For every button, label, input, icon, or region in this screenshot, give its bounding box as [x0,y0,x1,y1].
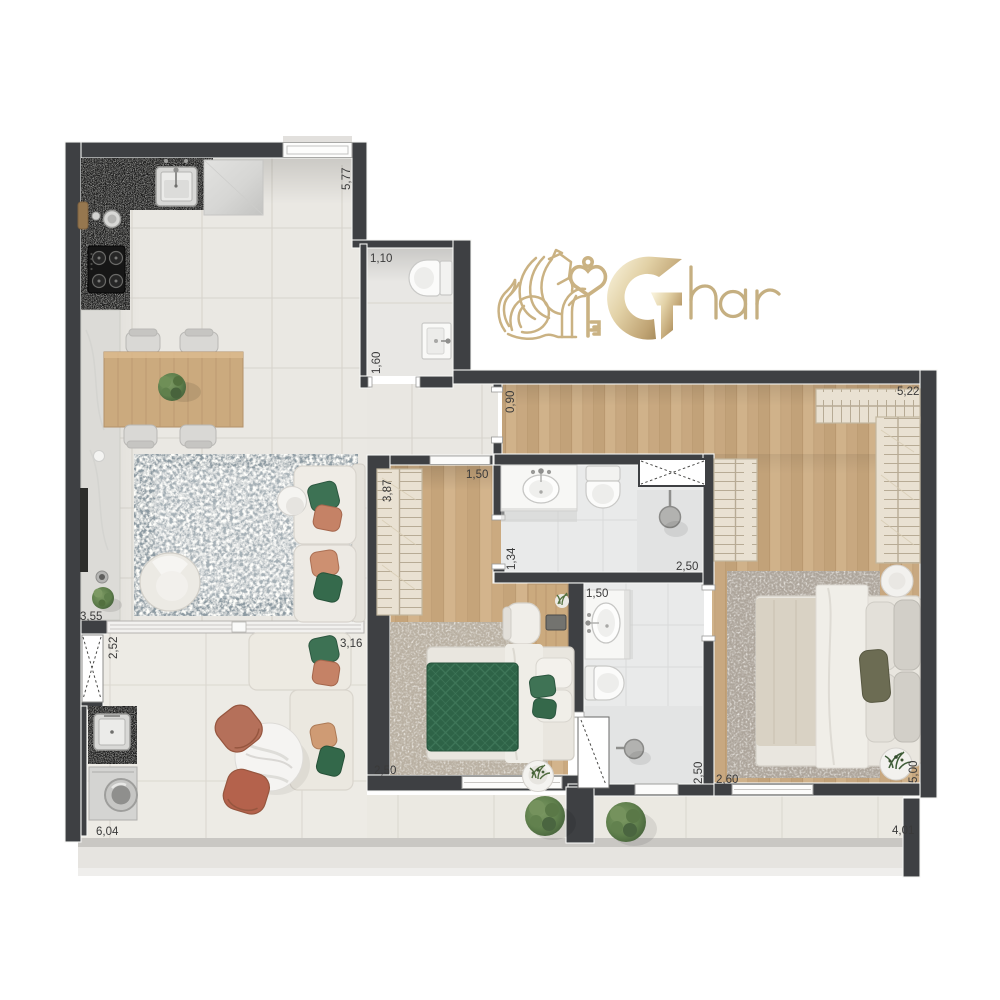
svg-text:3,55: 3,55 [80,611,102,623]
svg-text:3,16: 3,16 [340,638,362,650]
svg-text:1,60: 1,60 [371,352,383,374]
svg-text:0,90: 0,90 [505,391,517,413]
svg-text:4,01: 4,01 [892,825,914,837]
svg-text:3,87: 3,87 [382,480,394,502]
svg-text:2,50: 2,50 [676,561,698,573]
svg-text:1,50: 1,50 [466,469,488,481]
svg-text:5,00: 5,00 [908,761,920,783]
svg-text:2,52: 2,52 [108,637,120,659]
svg-text:1,10: 1,10 [370,253,392,265]
svg-text:1,34: 1,34 [506,547,518,570]
svg-text:5,77: 5,77 [341,168,353,190]
svg-text:6,04: 6,04 [96,826,119,838]
svg-text:1,50: 1,50 [586,588,608,600]
svg-text:2,50: 2,50 [693,762,705,784]
svg-text:5,22: 5,22 [897,386,919,398]
svg-text:2,50: 2,50 [374,765,396,777]
svg-text:2,60: 2,60 [716,774,738,786]
